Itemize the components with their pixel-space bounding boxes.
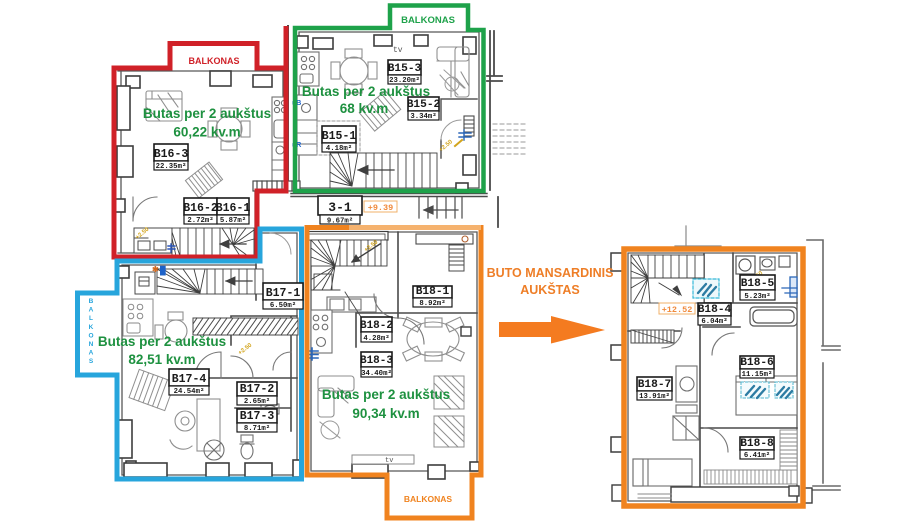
svg-text:2.65m²: 2.65m² bbox=[244, 397, 270, 406]
svg-text:B18-4: B18-4 bbox=[698, 304, 732, 316]
svg-text:B18-3: B18-3 bbox=[360, 355, 393, 367]
svg-text:█: █ bbox=[160, 265, 166, 276]
svg-text:B16-3: B16-3 bbox=[154, 148, 189, 161]
svg-text:B17-2: B17-2 bbox=[240, 383, 275, 396]
svg-text:22.35m²: 22.35m² bbox=[156, 162, 187, 171]
svg-text:+12.52: +12.52 bbox=[662, 305, 693, 315]
svg-text:BALKONAS: BALKONAS bbox=[401, 15, 455, 26]
svg-text:BALKONAS: BALKONAS bbox=[404, 494, 452, 504]
svg-text:Butas per 2 aukštus: Butas per 2 aukštus bbox=[322, 387, 450, 402]
svg-text:5.23m²: 5.23m² bbox=[744, 292, 770, 301]
svg-text:6.50m²: 6.50m² bbox=[270, 301, 296, 310]
svg-text:Butas per 2 aukštus: Butas per 2 aukštus bbox=[143, 106, 271, 121]
svg-text:BALKONAS: BALKONAS bbox=[88, 298, 93, 365]
svg-text:B17-1: B17-1 bbox=[266, 287, 301, 300]
svg-text:8.92m²: 8.92m² bbox=[419, 299, 445, 308]
svg-text:B15-1: B15-1 bbox=[322, 130, 357, 143]
svg-text:B18-6: B18-6 bbox=[740, 357, 774, 369]
svg-text:60,22 kv.m: 60,22 kv.m bbox=[173, 125, 240, 140]
svg-text:34.40m²: 34.40m² bbox=[361, 369, 392, 378]
svg-text:B18-2: B18-2 bbox=[360, 320, 393, 332]
svg-text:B15-2: B15-2 bbox=[407, 99, 441, 111]
svg-text:90,34 kv.m: 90,34 kv.m bbox=[352, 406, 419, 421]
svg-text:BALKONAS: BALKONAS bbox=[189, 56, 240, 66]
svg-text:tv: tv bbox=[393, 46, 403, 55]
svg-text:+9.39: +9.39 bbox=[368, 203, 394, 213]
svg-text:B18-1: B18-1 bbox=[416, 286, 450, 298]
svg-text:B18-7: B18-7 bbox=[638, 379, 672, 391]
svg-text:B18-5: B18-5 bbox=[741, 278, 775, 290]
svg-text:3.34m²: 3.34m² bbox=[410, 112, 436, 121]
svg-text:B17-4: B17-4 bbox=[172, 373, 207, 386]
svg-text:23.20m²: 23.20m² bbox=[389, 76, 420, 85]
svg-text:9.67m²: 9.67m² bbox=[327, 217, 353, 226]
svg-text:B18-8: B18-8 bbox=[740, 438, 774, 450]
svg-text:✱: ✱ bbox=[152, 265, 159, 274]
svg-text:6.41m²: 6.41m² bbox=[744, 451, 770, 460]
svg-text:4.28m²: 4.28m² bbox=[363, 334, 389, 343]
svg-text:2.72m²: 2.72m² bbox=[187, 216, 213, 225]
svg-text:24.54m²: 24.54m² bbox=[174, 387, 205, 396]
svg-text:tv: tv bbox=[385, 457, 393, 465]
svg-text:AUKŠTAS: AUKŠTAS bbox=[520, 282, 580, 297]
svg-text:11.15m²: 11.15m² bbox=[742, 370, 773, 379]
svg-text:B17-3: B17-3 bbox=[240, 410, 275, 423]
svg-text:B16-2: B16-2 bbox=[183, 202, 218, 215]
svg-text:3-1: 3-1 bbox=[328, 200, 352, 215]
svg-text:Butas per 2 aukštus: Butas per 2 aukštus bbox=[98, 334, 226, 349]
svg-text:82,51 kv.m: 82,51 kv.m bbox=[128, 352, 195, 367]
svg-text:B15-3: B15-3 bbox=[388, 63, 422, 75]
svg-text:4.18m²: 4.18m² bbox=[326, 144, 352, 153]
svg-text:13.91m²: 13.91m² bbox=[639, 392, 670, 401]
svg-text:68 kv.m: 68 kv.m bbox=[340, 101, 389, 116]
svg-text:5.87m²: 5.87m² bbox=[220, 216, 246, 225]
svg-text:6.04m²: 6.04m² bbox=[701, 317, 727, 326]
svg-text:8.71m²: 8.71m² bbox=[244, 424, 270, 433]
svg-text:BUTO MANSARDINIS: BUTO MANSARDINIS bbox=[487, 266, 614, 280]
svg-text:B16-1: B16-1 bbox=[216, 202, 251, 215]
